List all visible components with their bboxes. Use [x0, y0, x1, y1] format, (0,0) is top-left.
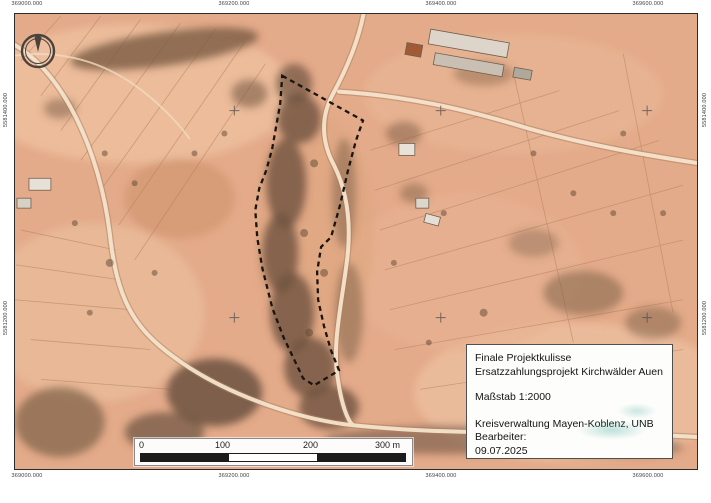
coordinate-label: 369600.000 [632, 1, 663, 7]
project-title-line2: Ersatzzahlungsprojekt Kirchwälder Auen [475, 366, 664, 380]
scale-segment-dark [317, 454, 405, 461]
coordinate-label: 369000.000 [11, 473, 42, 479]
coordinate-label: 369400.000 [425, 1, 456, 7]
coordinate-label: 369200.000 [218, 1, 249, 7]
scanned-map-page: 369000.000 369200.000 369400.000 369600.… [0, 0, 711, 503]
scale-segment-light [229, 454, 317, 461]
scale-tick-label: 100 [215, 440, 230, 450]
coordinate-label: 5581200.000 [3, 301, 9, 335]
coordinate-label: 369600.000 [632, 473, 663, 479]
project-title-line1: Finale Projektkulisse [475, 352, 664, 366]
coordinate-label: 369400.000 [425, 473, 456, 479]
scale-segment-dark [141, 454, 229, 461]
coordinate-label: 369200.000 [218, 473, 249, 479]
coordinate-label: 369000.000 [11, 1, 42, 7]
scale-bar: 0 100 200 300 m [134, 438, 413, 466]
scale-tick-label: 200 [303, 440, 318, 450]
coordinate-label: 5581400.000 [3, 93, 9, 127]
scan-artifact [617, 403, 657, 419]
date-text: 09.07.2025 [475, 445, 664, 459]
scale-tick-label: 300 m [375, 440, 400, 450]
title-block: Finale Projektkulisse Ersatzzahlungsproj… [466, 344, 673, 459]
coordinate-label: 5581200.000 [702, 301, 708, 335]
north-arrow-icon [18, 30, 58, 70]
scale-bar-segments [140, 453, 406, 462]
scan-artifact [577, 420, 647, 440]
scale-tick-label: 0 [139, 440, 144, 450]
map-frame: 0 100 200 300 m Finale Projektkulisse Er… [14, 13, 698, 470]
coordinate-label: 5581400.000 [702, 93, 708, 127]
